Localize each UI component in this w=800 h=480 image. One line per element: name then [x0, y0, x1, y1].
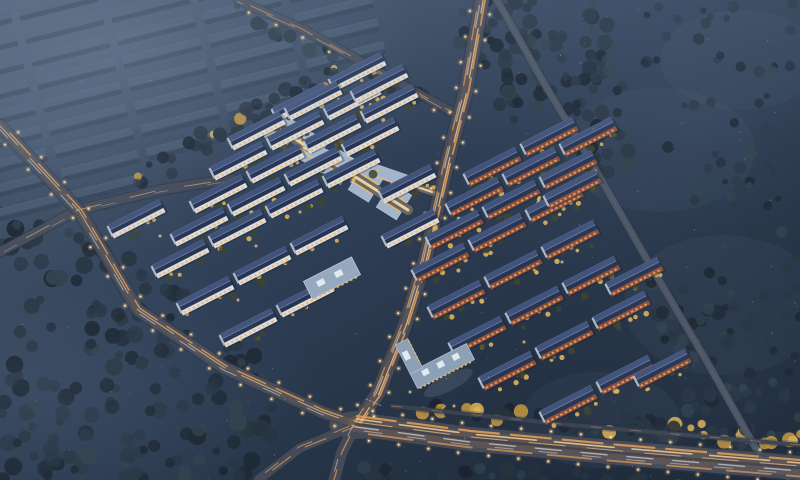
light-speckle [797, 306, 798, 307]
light-speckle [592, 128, 593, 129]
street-lamp [547, 461, 549, 463]
light-speckle [582, 18, 583, 19]
light-speckle [714, 56, 715, 57]
light-speckle [404, 447, 405, 448]
garden-shrub [258, 278, 267, 287]
light-speckle [355, 333, 356, 334]
light-speckle [681, 123, 682, 124]
light-speckle [466, 75, 467, 76]
light-speckle [798, 452, 799, 453]
street-lamp [357, 404, 359, 406]
light-speckle [464, 438, 465, 439]
street-lamp [370, 384, 372, 386]
light-speckle [469, 352, 470, 353]
light-speckle [699, 340, 700, 341]
lit-tree [498, 387, 502, 391]
street-lamp [416, 318, 418, 320]
lit-tree [285, 215, 290, 220]
light-speckle [272, 368, 273, 369]
lit-tree [545, 312, 550, 317]
light-speckle [787, 389, 788, 390]
garden-shrub [252, 231, 257, 236]
light-speckle [420, 461, 421, 462]
light-speckle [486, 298, 487, 299]
light-speckle [752, 301, 753, 302]
street-lamp [402, 414, 404, 416]
light-speckle [130, 392, 131, 393]
street-lamp [488, 455, 490, 457]
light-speckle [488, 377, 489, 378]
light-speckle [770, 200, 771, 201]
garden-lamp [523, 341, 524, 342]
light-speckle [274, 455, 275, 456]
light-speckle [746, 443, 747, 444]
light-speckle [446, 378, 447, 379]
garden-shrub [304, 203, 311, 210]
light-speckle [36, 401, 37, 402]
light-speckle [607, 16, 608, 17]
light-speckle [672, 146, 673, 147]
aerial-night-rendering: Night-time aerial rendering of a residen… [0, 0, 800, 480]
street-lamp [373, 416, 375, 418]
garden-lamp [409, 391, 410, 392]
street-lamp [424, 293, 426, 295]
light-speckle [584, 43, 585, 44]
light-speckle [795, 360, 796, 361]
light-speckle [614, 401, 615, 402]
light-speckle [685, 378, 686, 379]
tree-clump [489, 472, 496, 479]
lit-tree [449, 314, 454, 319]
light-speckle [487, 357, 488, 358]
screenshot-root: Night-time aerial rendering of a residen… [0, 0, 800, 480]
lit-tree [426, 184, 429, 187]
tree-clump [466, 470, 473, 477]
light-speckle [182, 373, 183, 374]
light-speckle [511, 466, 512, 467]
light-speckle [161, 366, 162, 367]
street-lamp [398, 444, 400, 446]
light-speckle [467, 69, 468, 70]
light-speckle [632, 466, 633, 467]
light-speckle [775, 112, 776, 113]
street-lamp [450, 192, 452, 194]
light-speckle [529, 222, 530, 223]
garden-lamp [453, 405, 454, 406]
street-lamp [419, 238, 421, 240]
light-speckle [708, 39, 709, 40]
light-speckle [469, 58, 470, 59]
lit-tree [456, 269, 460, 273]
light-speckle [560, 55, 561, 56]
scene-svg [0, 0, 800, 480]
light-speckle [650, 475, 651, 476]
street-lamp [388, 392, 390, 394]
light-speckle [150, 80, 151, 81]
lit-tree [489, 342, 493, 346]
tree-clump [527, 464, 540, 477]
light-speckle [517, 376, 518, 377]
light-speckle [526, 133, 527, 134]
light-speckle [686, 267, 687, 268]
light-speckle [739, 132, 740, 133]
street-lamp [444, 217, 446, 219]
light-speckle [580, 62, 581, 63]
light-speckle [25, 377, 26, 378]
garden-shrub [369, 170, 378, 179]
street-lamp [340, 408, 342, 410]
light-speckle [537, 161, 538, 162]
garden-shrub [219, 247, 225, 253]
garden-lamp [255, 245, 256, 246]
lit-tree [246, 236, 251, 241]
lit-tree [432, 185, 436, 189]
garden-shrub [521, 325, 526, 330]
light-speckle [439, 477, 440, 478]
street-lamp [397, 312, 399, 314]
lit-tree [479, 299, 484, 304]
street-lamp [389, 336, 391, 338]
light-speckle [767, 40, 768, 41]
light-speckle [732, 470, 733, 471]
tree-clump [474, 463, 485, 474]
street-lamp [518, 458, 520, 460]
light-speckle [579, 225, 580, 226]
light-speckle [795, 302, 796, 303]
light-speckle [110, 391, 111, 392]
tree-clump [500, 466, 513, 479]
light-speckle [126, 363, 127, 364]
light-speckle [284, 399, 285, 400]
light-speckle [81, 81, 82, 82]
tree-clump [357, 461, 370, 474]
light-speckle [227, 420, 228, 421]
light-speckle [68, 327, 69, 328]
light-speckle [438, 153, 439, 154]
light-speckle [209, 477, 210, 478]
street-lamp [520, 428, 522, 430]
street-lamp [379, 360, 381, 362]
street-lamp [436, 162, 438, 164]
light-speckle [482, 312, 483, 313]
garden-shrub [433, 277, 440, 284]
light-speckle [390, 463, 391, 464]
light-speckle [592, 257, 593, 258]
light-speckle [772, 332, 773, 333]
light-speckle [677, 435, 678, 436]
street-lamp [413, 263, 415, 265]
garden-lamp [299, 211, 300, 212]
street-lamp [490, 425, 492, 427]
light-speckle [561, 113, 562, 114]
light-speckle [635, 311, 636, 312]
light-speckle [248, 402, 249, 403]
light-speckle [405, 470, 406, 471]
light-speckle [637, 191, 638, 192]
light-speckle [771, 266, 772, 267]
light-speckle [694, 230, 695, 231]
lit-tree [352, 178, 356, 182]
light-speckle [454, 360, 455, 361]
light-speckle [703, 89, 704, 90]
light-speckle [37, 372, 38, 373]
street-lamp [372, 410, 374, 412]
light-speckle [564, 43, 565, 44]
street-lamp [368, 440, 370, 442]
street-lamp [334, 425, 336, 427]
street-lamp [405, 287, 407, 289]
tree-clump [516, 470, 525, 479]
street-lamp [428, 448, 430, 450]
light-speckle [784, 17, 785, 18]
lit-tree [335, 239, 339, 243]
light-speckle [518, 72, 519, 73]
light-speckle [744, 158, 745, 159]
light-speckle [69, 450, 70, 451]
light-speckle [693, 460, 694, 461]
light-speckle [740, 139, 741, 140]
lit-tree [448, 243, 453, 248]
street-lamp [461, 422, 463, 424]
street-lamp [431, 418, 433, 420]
light-speckle [638, 9, 639, 10]
light-speckle [460, 207, 461, 208]
street-lamp [398, 368, 400, 370]
light-speckle [550, 85, 551, 86]
light-speckle [22, 324, 23, 325]
street-lamp [457, 452, 459, 454]
light-speckle [515, 349, 516, 350]
garden-shrub [318, 198, 326, 206]
lit-tree [514, 380, 519, 385]
light-speckle [549, 29, 550, 30]
